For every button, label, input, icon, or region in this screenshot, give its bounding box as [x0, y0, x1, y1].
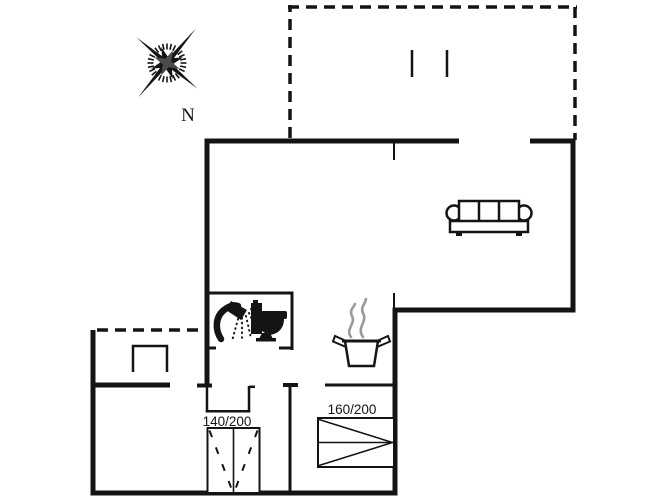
sofa-backrest: [459, 201, 519, 222]
floor-plan-drawing: N: [0, 0, 667, 500]
bed-size-label: 160/200: [328, 402, 377, 417]
compass-tick: [179, 69, 184, 72]
bed-double-140: 140/200: [203, 414, 260, 493]
compass-tick: [163, 44, 164, 50]
toilet-bowl: [262, 319, 284, 335]
compass-tick: [149, 69, 154, 72]
compass-tick: [179, 55, 184, 58]
compass-tick: [180, 66, 186, 67]
compass-tick: [159, 75, 162, 80]
compass-tick: [180, 59, 186, 60]
compass-tick: [148, 59, 154, 60]
compass-tick: [170, 44, 171, 50]
bed-double-160: 160/200: [318, 402, 394, 467]
toilet-icon: [251, 300, 287, 342]
compass-tick: [163, 76, 164, 82]
shower-spray: [232, 319, 238, 341]
shower-spray: [246, 316, 251, 338]
cooking-pot-icon: [333, 299, 390, 366]
pot-body: [345, 341, 378, 366]
steam-icon: [349, 304, 355, 337]
steam-icon: [361, 299, 366, 337]
compass-tick: [148, 66, 154, 67]
toilet-seat: [260, 311, 287, 319]
sofa-seat: [450, 221, 528, 232]
compass-tick: [170, 76, 171, 82]
toilet-tank: [251, 303, 262, 334]
sofa-icon: [447, 201, 532, 236]
compass-north-label: N: [181, 105, 195, 126]
compass-star: [136, 29, 197, 98]
compass-rose-icon: N: [136, 29, 197, 127]
terrace-outline: [288, 5, 577, 140]
compass-tick: [173, 75, 176, 80]
toilet-base: [256, 338, 276, 342]
bed-size-label: 140/200: [203, 414, 252, 429]
compass-tick: [173, 45, 176, 50]
compass-tick: [149, 55, 154, 58]
closet: [197, 386, 255, 413]
bench-icon: [133, 346, 167, 372]
compass-tick: [159, 45, 162, 50]
floor-plan: N: [0, 0, 667, 500]
